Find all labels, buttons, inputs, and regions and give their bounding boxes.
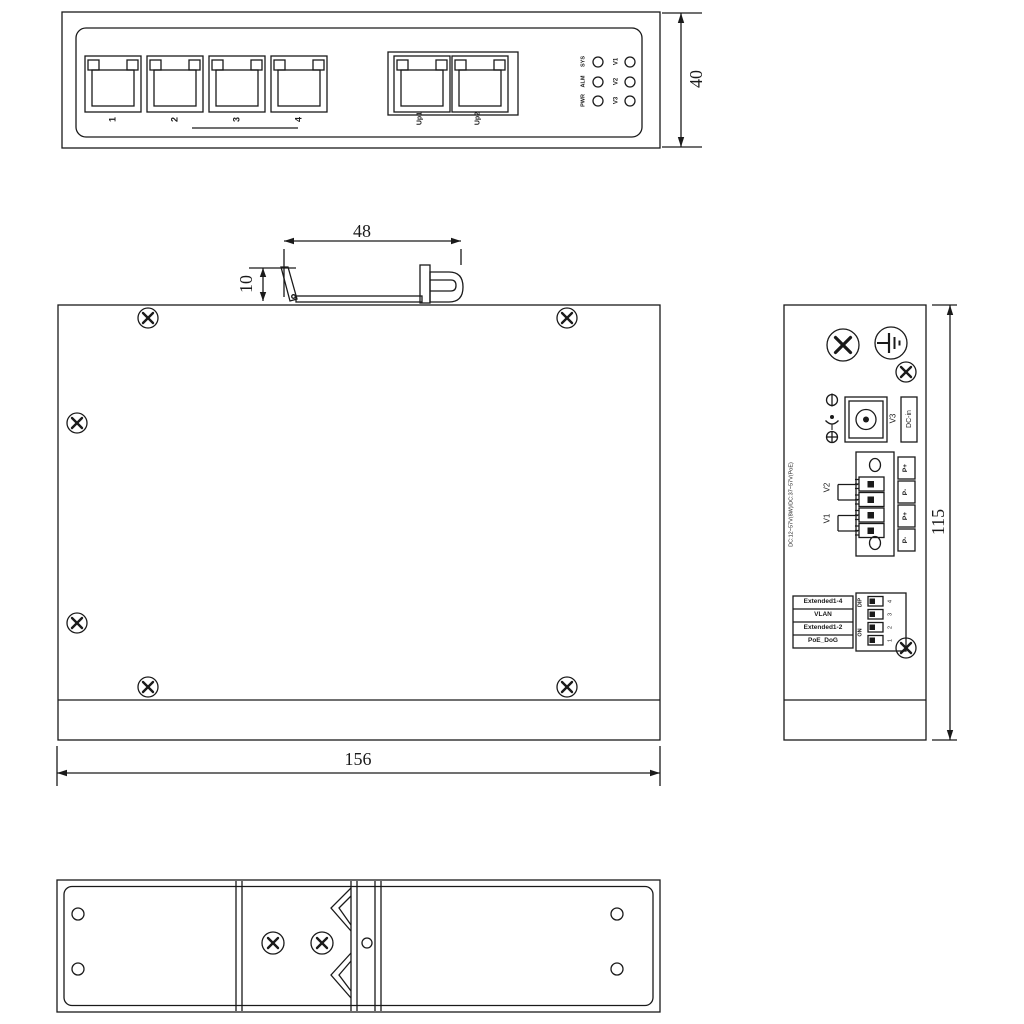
dc-jack	[845, 397, 887, 442]
rj45-port-2	[147, 56, 203, 112]
uplink-2-label: Up2	[473, 110, 484, 128]
dip-label: DIP	[857, 595, 866, 611]
pin-label: P+	[900, 458, 912, 478]
rj45-uplink-2	[452, 56, 508, 112]
front-panel-outline	[62, 12, 660, 148]
pin-label: P-	[900, 530, 912, 550]
dip-row-extended14: Extended1-4	[794, 597, 852, 608]
port-1-label: 1	[107, 113, 120, 127]
bottom-view	[40, 860, 680, 1020]
dip-number: 1	[887, 636, 896, 646]
v2-bracket	[838, 485, 858, 501]
technical-drawing-sheet: 1 2 3 4 Up1 Up2 SYS ALM PWR V1 V2 V3 40	[0, 0, 1024, 1024]
pin-label: P+	[900, 506, 912, 526]
dc-in-label: DC-in	[903, 399, 915, 439]
screw-icon	[138, 677, 158, 697]
rj45-port-1	[85, 56, 141, 112]
dip-number: 2	[887, 623, 896, 633]
front-panel-face	[76, 28, 642, 137]
dip-number: 4	[887, 597, 896, 607]
pin-label: P-	[900, 482, 912, 502]
screw-icon	[557, 677, 577, 697]
dip-row-poedog: PoE_DoG	[794, 636, 852, 647]
center-hole	[362, 938, 372, 948]
dim-width-156: 156	[338, 749, 378, 769]
dim-din-height-10: 10	[236, 269, 256, 299]
led-pwr-icon	[593, 96, 603, 106]
din-clip-springs	[331, 888, 351, 998]
din-rail-slot-lines	[236, 881, 381, 1011]
dim-din-width-48: 48	[347, 221, 377, 241]
led-v2-icon	[625, 77, 635, 87]
dim-height-115: 115	[928, 505, 948, 539]
top-view	[40, 205, 680, 805]
dip-row-vlan: VLAN	[794, 610, 852, 621]
v3-label: V3	[888, 410, 899, 428]
led-v3-icon	[625, 96, 635, 106]
terminal-pins	[855, 477, 884, 538]
rj45-port-4	[271, 56, 327, 112]
led-alm-label: ALM	[580, 74, 589, 90]
led-v2-label: V2	[612, 74, 621, 90]
din-rail-clip-profile	[281, 265, 463, 303]
ground-icon	[875, 327, 907, 359]
on-label: ON	[857, 626, 866, 640]
dimension-din-width-48	[284, 238, 461, 297]
screw-icon	[138, 308, 158, 328]
led-v1-icon	[625, 57, 635, 67]
polarity-icon	[826, 394, 839, 443]
screw-icon	[67, 413, 87, 433]
screw-icon	[827, 329, 859, 361]
v1-bracket	[838, 516, 858, 532]
terminal-v1-label: V1	[822, 511, 833, 527]
led-v1-label: V1	[612, 54, 621, 70]
screw-icon	[311, 932, 333, 954]
screw-icon	[896, 362, 916, 382]
top-view-outline	[58, 305, 660, 740]
port-3-label: 3	[231, 113, 244, 127]
port-4-label: 4	[293, 113, 306, 127]
rj45-uplink-1	[394, 56, 450, 112]
led-alm-icon	[593, 77, 603, 87]
bottom-view-outline	[57, 880, 660, 1012]
led-sys-label: SYS	[580, 54, 589, 70]
uplink-1-label: Up1	[415, 110, 426, 128]
screw-icon	[262, 932, 284, 954]
screw-icon	[67, 613, 87, 633]
dim-height-40: 40	[686, 64, 706, 94]
led-sys-icon	[593, 57, 603, 67]
dip-row-extended12: Extended1-2	[794, 623, 852, 634]
dip-number: 3	[887, 610, 896, 620]
bottom-plate	[64, 887, 653, 1006]
rj45-port-3	[209, 56, 265, 112]
led-v3-label: V3	[612, 93, 621, 109]
screw-icon	[557, 308, 577, 328]
led-pwr-label: PWR	[580, 93, 589, 109]
port-2-label: 2	[169, 113, 182, 127]
terminal-v2-label: V2	[822, 480, 833, 496]
terminal-block	[838, 452, 894, 556]
power-spec-label: DC:12~57V(8W)/DC:37~57V(PoE)	[788, 445, 797, 565]
